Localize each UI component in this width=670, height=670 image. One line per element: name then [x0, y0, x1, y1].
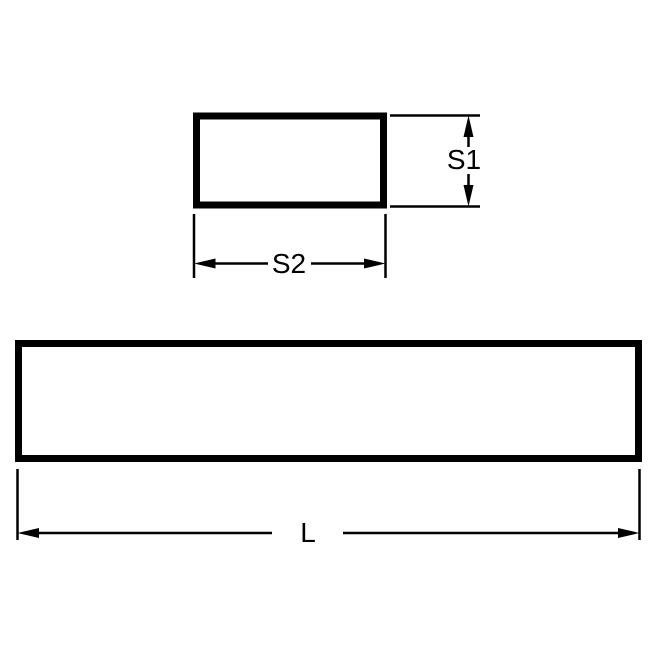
technical-drawing-canvas: S1 S2 L	[0, 0, 670, 670]
s1-dimension-label: S1	[447, 144, 481, 175]
dimension-drawing: S1 S2 L	[0, 0, 670, 670]
l-arrow-right-icon	[618, 528, 640, 538]
l-arrow-left-icon	[18, 528, 40, 538]
s2-arrow-left-icon	[194, 259, 216, 269]
s2-arrow-right-icon	[364, 259, 386, 269]
cross-section-view: S1 S2	[194, 116, 481, 280]
s2-dimension-label: S2	[272, 248, 306, 279]
s1-arrow-up-icon	[464, 116, 474, 138]
side-view: L	[18, 344, 640, 549]
s1-arrow-down-icon	[464, 185, 474, 207]
l-dimension: L	[18, 469, 640, 548]
s2-dimension: S2	[194, 214, 386, 279]
s1-dimension: S1	[390, 116, 481, 207]
cross-section-rectangle	[197, 116, 384, 205]
side-view-rectangle	[19, 344, 639, 459]
l-dimension-label: L	[300, 517, 316, 548]
